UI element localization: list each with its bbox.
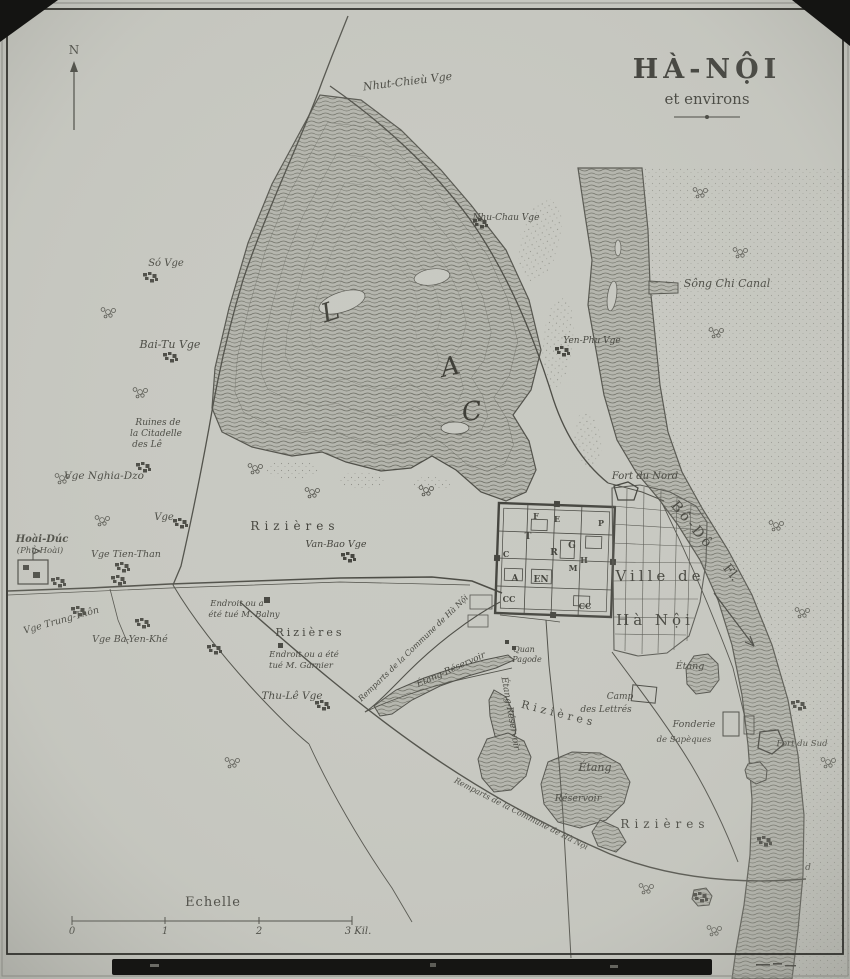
scan-bottom-bar <box>112 959 712 975</box>
vignette-overlay <box>0 0 850 979</box>
hanoi-map-svg: Nhut-Chieù VgeNhu-Chau VgeSông Chi Canal… <box>0 0 850 979</box>
map-scan: Nhut-Chieù VgeNhu-Chau VgeSông Chi Canal… <box>0 0 850 979</box>
